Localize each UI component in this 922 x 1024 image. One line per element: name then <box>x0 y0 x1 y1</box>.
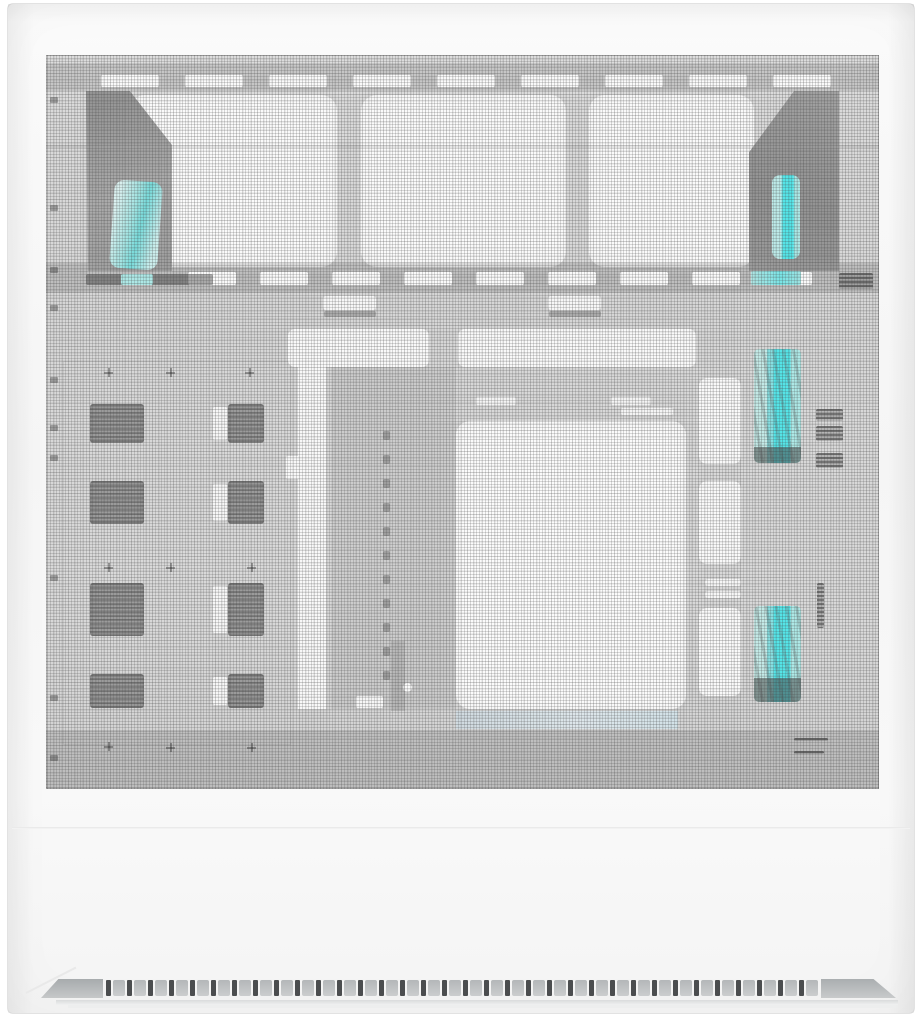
vent-dash-gray <box>365 980 377 996</box>
mid-rail-slot <box>404 272 452 285</box>
vent-dash-dark <box>505 980 510 996</box>
left-edge-rivet <box>50 205 58 211</box>
vent-dash-dark <box>442 980 447 996</box>
vent-dash-dark <box>547 980 552 996</box>
right-strip-dash-1 <box>705 579 741 586</box>
channel-rivet-dot <box>383 551 390 560</box>
cpu-cutout-window <box>456 421 686 709</box>
right-edge-shading <box>888 4 914 1013</box>
left-edge-rivet <box>50 575 58 581</box>
top-rail-slot <box>185 75 243 87</box>
vent-dash-gray <box>260 980 272 996</box>
vent-dash-gray <box>680 980 692 996</box>
top-edge-shading <box>8 4 914 22</box>
mesh-side-panel <box>46 55 879 789</box>
product-photo-scene <box>0 0 922 1024</box>
vent-dash-dark <box>631 980 636 996</box>
vent-dash-dark <box>652 980 657 996</box>
top-rail-slot <box>689 75 747 87</box>
channel-rivet-dot <box>383 527 390 536</box>
vent-dash-dark <box>274 980 279 996</box>
handle-slot-hatch <box>549 311 601 317</box>
right-slot-strip-3 <box>699 608 741 696</box>
top-right-fan-base-teal <box>751 271 801 285</box>
top-rail-slot <box>773 75 831 87</box>
left-edge-rivet <box>50 305 58 311</box>
vent-dash-dark <box>736 980 741 996</box>
vent-dash-gray <box>113 980 125 996</box>
vent-dash-gray <box>218 980 230 996</box>
roof-fan-cutout-2 <box>361 95 566 267</box>
right-strip-dash-2 <box>705 591 741 598</box>
cable-hook-tick <box>213 484 227 521</box>
mid-rail-slot <box>332 272 380 285</box>
vent-dash-dark <box>169 980 174 996</box>
cable-hook <box>228 583 264 636</box>
cable-hook-tick <box>213 586 227 633</box>
vent-dash-gray <box>533 980 545 996</box>
mid-rail-slot <box>260 272 308 285</box>
vent-dash-gray <box>764 980 776 996</box>
vent-dash-dark <box>358 980 363 996</box>
vent-strip-right-wedge <box>821 979 896 998</box>
vent-dash-dark <box>379 980 384 996</box>
handle-slot <box>323 296 376 310</box>
screw-cross-mark <box>104 742 113 751</box>
vent-dash-dark <box>400 980 405 996</box>
vent-strip-left-wedge <box>41 979 103 998</box>
screw-cross-mark <box>166 743 175 752</box>
top-rail-slot-row <box>101 75 841 87</box>
right-edge-dark-mark <box>839 273 873 289</box>
vent-dash-gray <box>449 980 461 996</box>
left-edge-rivet <box>50 267 58 273</box>
vent-dash-gray <box>743 980 755 996</box>
right-slot-strip-2 <box>699 481 741 564</box>
mid-rail-slot <box>548 272 596 285</box>
vent-dash-gray <box>554 980 566 996</box>
cable-hook <box>228 404 264 443</box>
vent-dash-gray <box>155 980 167 996</box>
vent-dash-gray <box>596 980 608 996</box>
vent-dash-dark <box>757 980 762 996</box>
vent-dash-dark <box>799 980 804 996</box>
left-edge-rivet <box>50 97 58 103</box>
left-edge-rivet <box>50 455 58 461</box>
vent-dash-dark <box>127 980 132 996</box>
bottom-interior-band <box>46 731 879 789</box>
vent-dash-gray <box>638 980 650 996</box>
vent-dash-gray <box>722 980 734 996</box>
top-rail-slot <box>353 75 411 87</box>
left-edge-rivet <box>50 377 58 383</box>
vent-dash-gray <box>575 980 587 996</box>
screw-cross-mark <box>104 563 113 572</box>
roof-fan-cutout-3 <box>589 95 754 267</box>
vent-dash-gray <box>806 980 818 996</box>
vent-dash-gray <box>659 980 671 996</box>
vent-dash-gray <box>491 980 503 996</box>
cable-hook <box>90 583 144 636</box>
tray-top-bar-right <box>458 329 696 367</box>
tray-tab <box>286 456 300 479</box>
vent-strip-shadow-2 <box>68 1005 898 1008</box>
vent-dash-dark <box>463 980 468 996</box>
vent-dash-gray <box>617 980 629 996</box>
mid-rail-slot <box>476 272 524 285</box>
vent-dash-dark <box>337 980 342 996</box>
channel-rivet-dot <box>383 623 390 632</box>
vent-dash-dark <box>694 980 699 996</box>
vent-dash-gray <box>134 980 146 996</box>
handle-slot-hatch <box>324 311 376 317</box>
right-edge-dark-mark <box>817 583 824 628</box>
top-rail-slot <box>521 75 579 87</box>
cable-hook <box>90 674 144 708</box>
channel-rivet-dot <box>383 431 390 440</box>
mid-rail-slot-row <box>188 272 836 285</box>
tray-top-bar-left <box>288 329 429 367</box>
vent-dash-gray <box>176 980 188 996</box>
vent-mini-dash <box>621 408 673 415</box>
vent-dash-gray <box>323 980 335 996</box>
vent-dash-dark <box>589 980 594 996</box>
left-edge-rivet <box>50 755 58 761</box>
mid-rail-slot <box>620 272 668 285</box>
channel-rivet-dot <box>383 647 390 656</box>
tray-vertical-edge <box>298 367 326 709</box>
vent-dash-gray <box>785 980 797 996</box>
vent-dash-dark <box>190 980 195 996</box>
vent-dash-dark <box>316 980 321 996</box>
vent-dash-dark <box>106 980 111 996</box>
psu-area-dash <box>356 696 383 708</box>
right-edge-dark-mark <box>816 409 843 421</box>
vent-dash-dark <box>673 980 678 996</box>
vent-dash-dark <box>253 980 258 996</box>
top-right-fan-cyan-blade <box>772 175 800 259</box>
panel-seam-line <box>12 827 910 829</box>
vent-dash-gray <box>344 980 356 996</box>
mid-rail-slot <box>692 272 740 285</box>
vent-dash-gray <box>512 980 524 996</box>
top-rail-slot <box>101 75 159 87</box>
blue-reflection-band <box>456 711 678 729</box>
channel-rivet-dot <box>383 599 390 608</box>
bottom-vent-strip <box>106 980 819 996</box>
vent-dash-dark <box>232 980 237 996</box>
channel-rivet-dot <box>383 503 390 512</box>
screw-cross-mark <box>247 563 256 572</box>
vent-dash-gray <box>386 980 398 996</box>
right-edge-dark-mark <box>816 426 843 441</box>
vent-dash-gray <box>470 980 482 996</box>
screw-cross-mark <box>245 368 254 377</box>
vent-mini-dash <box>476 397 516 405</box>
vent-dash-dark <box>295 980 300 996</box>
screw-cross-mark <box>104 368 113 377</box>
right-slot-strip-1 <box>699 378 741 464</box>
cable-hook <box>228 674 264 708</box>
screw-cross-mark <box>166 368 175 377</box>
right-edge-dark-mark <box>794 738 828 741</box>
vent-dash-gray <box>701 980 713 996</box>
top-rail-slot <box>437 75 495 87</box>
channel-rivet-dot <box>383 671 390 680</box>
vent-dash-gray <box>302 980 314 996</box>
cable-hook <box>90 481 144 524</box>
channel-rivet-dot <box>383 455 390 464</box>
right-edge-dark-mark <box>816 453 843 468</box>
left-edge-rivet <box>50 425 58 431</box>
vent-dash-dark <box>211 980 216 996</box>
screw-cross-mark <box>247 743 256 752</box>
right-lower-cyan-fan <box>754 606 801 702</box>
vent-dash-dark <box>715 980 720 996</box>
channel-rivet-dot <box>383 575 390 584</box>
channel-foot-shadow <box>391 641 405 711</box>
cable-hook-tick <box>213 677 227 705</box>
vent-dash-dark <box>484 980 489 996</box>
right-edge-dark-mark <box>794 751 824 754</box>
cable-hook <box>228 481 264 524</box>
pc-case-body <box>7 3 915 1014</box>
handle-slot <box>548 296 601 310</box>
top-left-fan-base-teal <box>121 274 153 285</box>
top-left-fan-cyan-blade <box>109 179 163 270</box>
right-upper-cyan-fan <box>754 349 801 463</box>
left-edge-rivet <box>50 695 58 701</box>
top-rail-slot <box>269 75 327 87</box>
vent-dash-dark <box>526 980 531 996</box>
vent-dash-dark <box>778 980 783 996</box>
channel-rivet-dot <box>383 479 390 488</box>
cable-hook <box>90 404 144 443</box>
vent-dash-gray <box>407 980 419 996</box>
vent-dash-gray <box>428 980 440 996</box>
vent-dash-dark <box>148 980 153 996</box>
vent-dash-gray <box>239 980 251 996</box>
left-edge-shading <box>8 4 34 1013</box>
vent-dash-gray <box>281 980 293 996</box>
top-rail-slot <box>605 75 663 87</box>
vent-dash-gray <box>197 980 209 996</box>
vent-dash-dark <box>568 980 573 996</box>
vent-dash-dark <box>421 980 426 996</box>
vent-dash-dark <box>610 980 615 996</box>
vent-mini-dash <box>611 397 651 405</box>
cable-hook-tick <box>213 407 227 440</box>
screw-cross-mark <box>166 563 175 572</box>
